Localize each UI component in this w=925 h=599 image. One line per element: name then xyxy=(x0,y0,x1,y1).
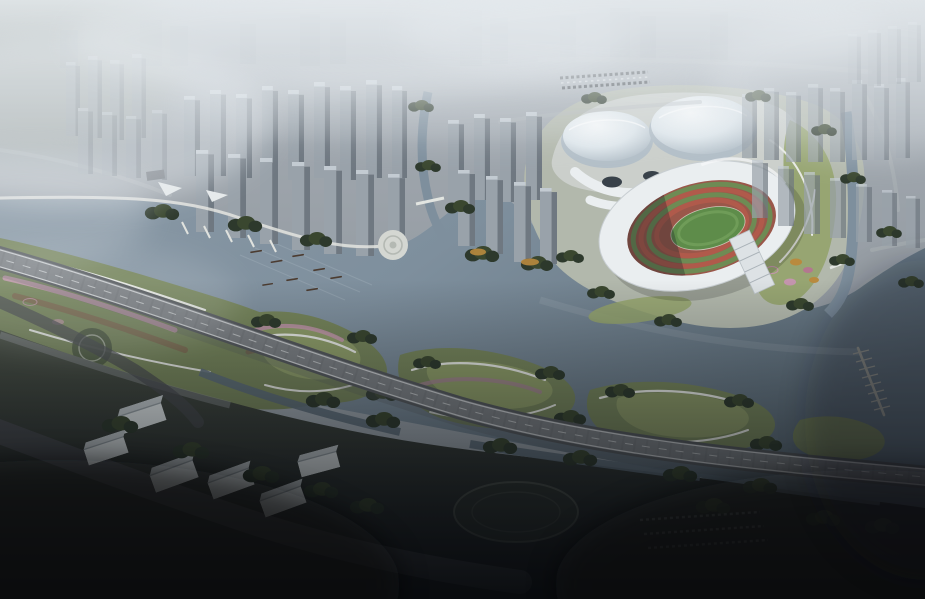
shell-plaza xyxy=(378,230,408,260)
aerial-rendering xyxy=(0,0,925,599)
vignette xyxy=(0,260,925,599)
scene-canvas xyxy=(0,0,925,599)
